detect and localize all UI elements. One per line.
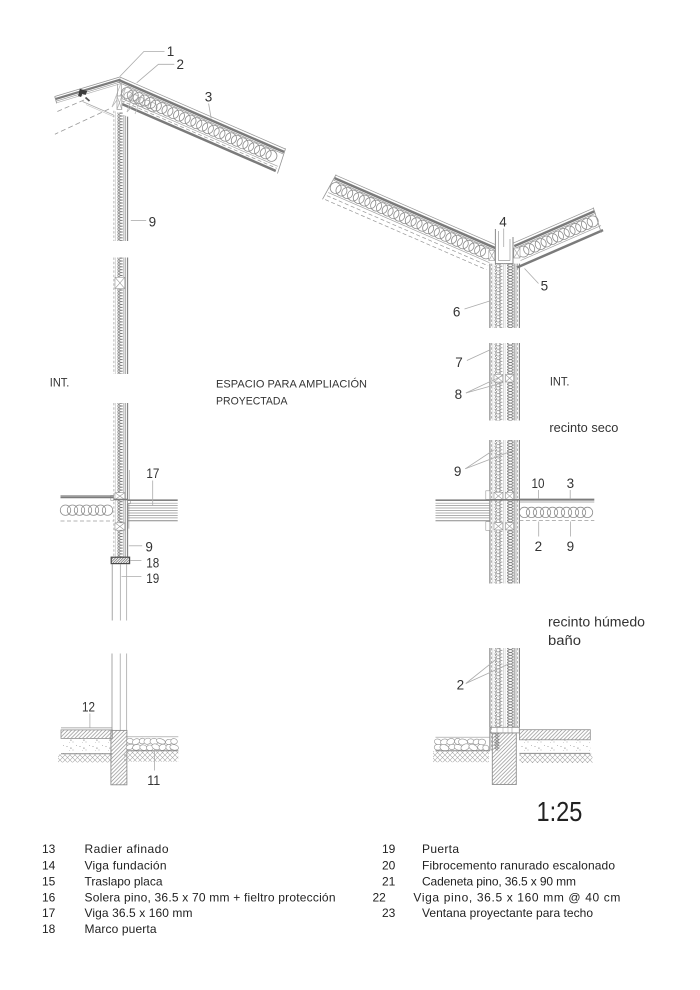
svg-text:INT.: INT.	[550, 375, 570, 389]
svg-text:INT.: INT.	[50, 376, 70, 390]
svg-text:ESPACIO PARA AMPLIACIÓN: ESPACIO PARA AMPLIACIÓN	[216, 378, 367, 391]
svg-text:PROYECTADA: PROYECTADA	[216, 396, 288, 408]
svg-text:22: 22	[373, 890, 387, 904]
svg-text:2: 2	[177, 57, 185, 72]
svg-text:Radier afinado: Radier afinado	[85, 842, 169, 856]
svg-text:18: 18	[146, 556, 159, 571]
svg-text:Viga pino, 36.5 x 160 m: Viga pino, 36.5 x 160 mm @ 40 cm	[413, 890, 620, 904]
svg-text:10: 10	[532, 476, 545, 491]
svg-text:2: 2	[457, 678, 465, 693]
svg-text:4: 4	[499, 215, 507, 230]
svg-text:23: 23	[382, 906, 396, 920]
svg-text:2: 2	[535, 539, 543, 554]
svg-text:Puerta: Puerta	[422, 842, 459, 856]
svg-text:18: 18	[42, 922, 56, 936]
svg-text:9: 9	[567, 539, 575, 554]
svg-text:1:25: 1:25	[537, 796, 583, 827]
svg-text:20: 20	[382, 858, 396, 872]
svg-text:recinto húmedo: recinto húmedo	[548, 615, 645, 630]
svg-text:1: 1	[167, 44, 175, 59]
svg-text:Viga fundación: Viga fundación	[85, 858, 167, 872]
svg-text:3: 3	[205, 90, 213, 105]
svg-text:baño: baño	[548, 633, 581, 648]
svg-text:14: 14	[42, 858, 56, 872]
svg-text:Cadeneta pino, 36.5 x 90 mm: Cadeneta pino, 36.5 x 90 mm	[422, 875, 576, 889]
svg-text:Fibrocemento ranurado escalona: Fibrocemento ranurado escalonado	[422, 858, 615, 872]
svg-text:19: 19	[146, 571, 159, 586]
svg-text:8: 8	[455, 387, 463, 402]
svg-text:12: 12	[82, 700, 95, 715]
svg-text:recinto seco: recinto seco	[549, 420, 618, 435]
svg-text:17: 17	[146, 466, 159, 481]
svg-text:16: 16	[42, 890, 56, 904]
svg-text:9: 9	[454, 464, 462, 479]
svg-text:3: 3	[567, 476, 575, 491]
svg-text:Viga 36.5 x 160 mm: Viga 36.5 x 160 mm	[85, 906, 193, 920]
svg-text:9: 9	[149, 215, 157, 230]
svg-text:17: 17	[42, 906, 56, 920]
svg-text:Ventana proyectante para techo: Ventana proyectante para techo	[422, 906, 593, 920]
svg-text:5: 5	[541, 279, 549, 294]
svg-text:11: 11	[147, 773, 160, 788]
svg-text:6: 6	[453, 305, 461, 320]
svg-text:19: 19	[382, 842, 396, 856]
svg-text:9: 9	[145, 540, 153, 555]
svg-text:Solera pino, 36.5 x 70 mm: Solera pino, 36.5 x 70 mm + fieltro prot…	[85, 890, 336, 904]
svg-text:15: 15	[42, 875, 56, 889]
svg-text:21: 21	[382, 875, 396, 889]
svg-text:13: 13	[42, 842, 56, 856]
svg-text:Traslapo placa: Traslapo placa	[85, 875, 163, 889]
svg-text:7: 7	[455, 355, 463, 370]
svg-text:Marco puerta: Marco puerta	[85, 922, 157, 936]
